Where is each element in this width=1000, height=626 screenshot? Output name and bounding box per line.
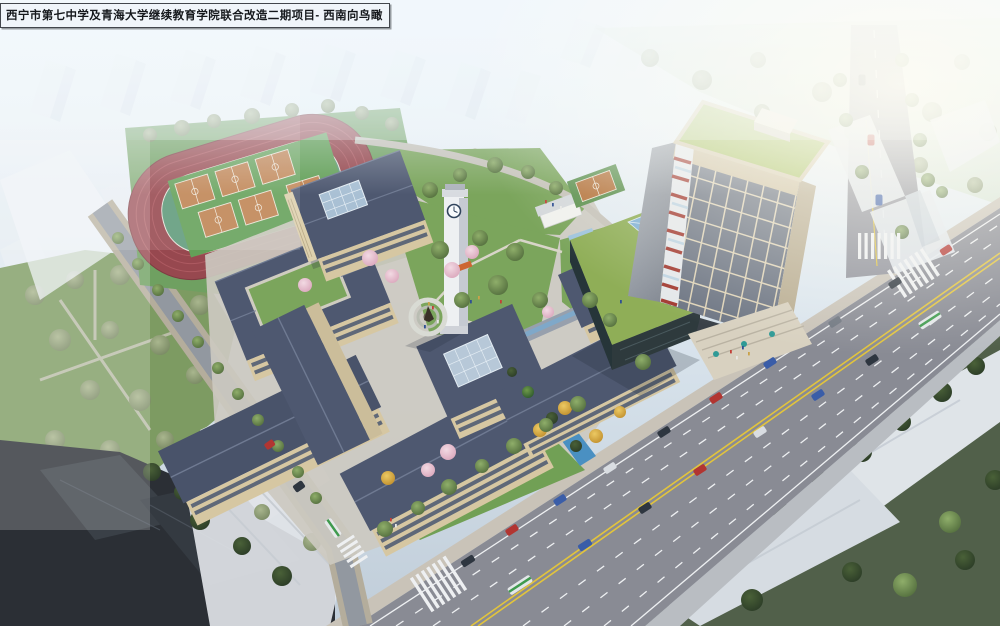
rendering-canvas [0,0,1000,626]
view-title-caption: 西宁市第七中学及青海大学继续教育学院联合改造二期项目- 西南向鸟瞰 [0,3,390,28]
aerial-rendering: 西宁市第七中学及青海大学继续教育学院联合改造二期项目- 西南向鸟瞰 [0,0,1000,626]
